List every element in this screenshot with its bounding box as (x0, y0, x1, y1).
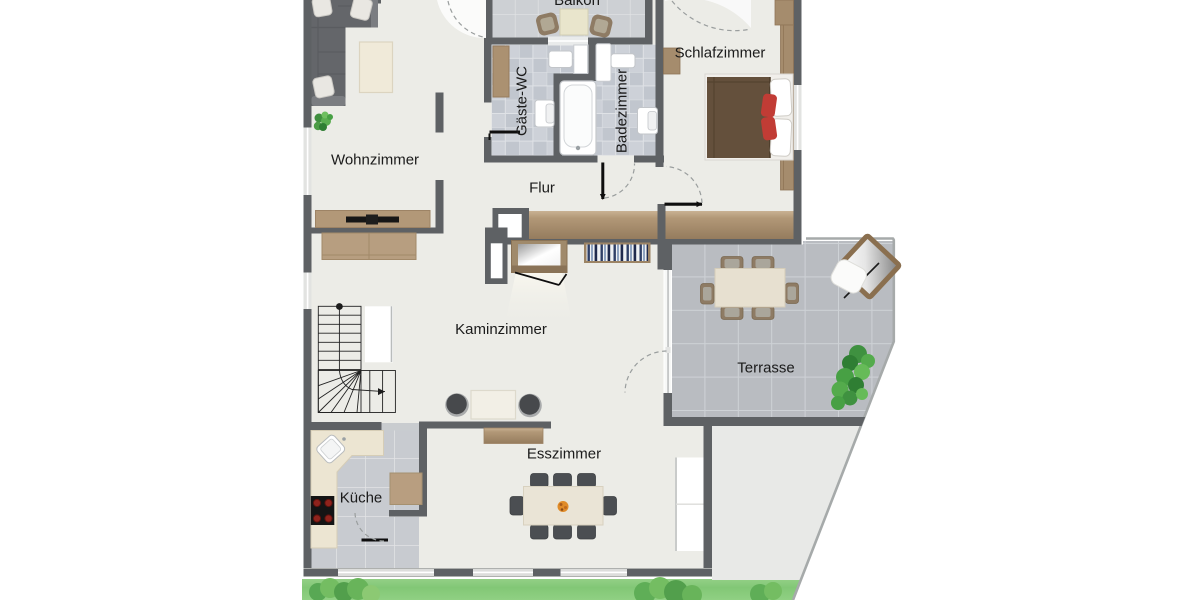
svg-text:Esszimmer: Esszimmer (527, 446, 601, 463)
svg-text:Balkon: Balkon (554, 0, 600, 9)
svg-text:Schlafzimmer: Schlafzimmer (675, 45, 766, 62)
svg-text:Badezimmer: Badezimmer (614, 69, 631, 153)
svg-text:Flur: Flur (529, 180, 555, 197)
svg-text:Kaminzimmer: Kaminzimmer (455, 321, 547, 338)
svg-text:Terrasse: Terrasse (737, 360, 795, 377)
svg-text:Gäste-WC: Gäste-WC (514, 66, 531, 136)
svg-text:Küche: Küche (340, 490, 383, 507)
svg-text:Wohnzimmer: Wohnzimmer (331, 152, 419, 169)
